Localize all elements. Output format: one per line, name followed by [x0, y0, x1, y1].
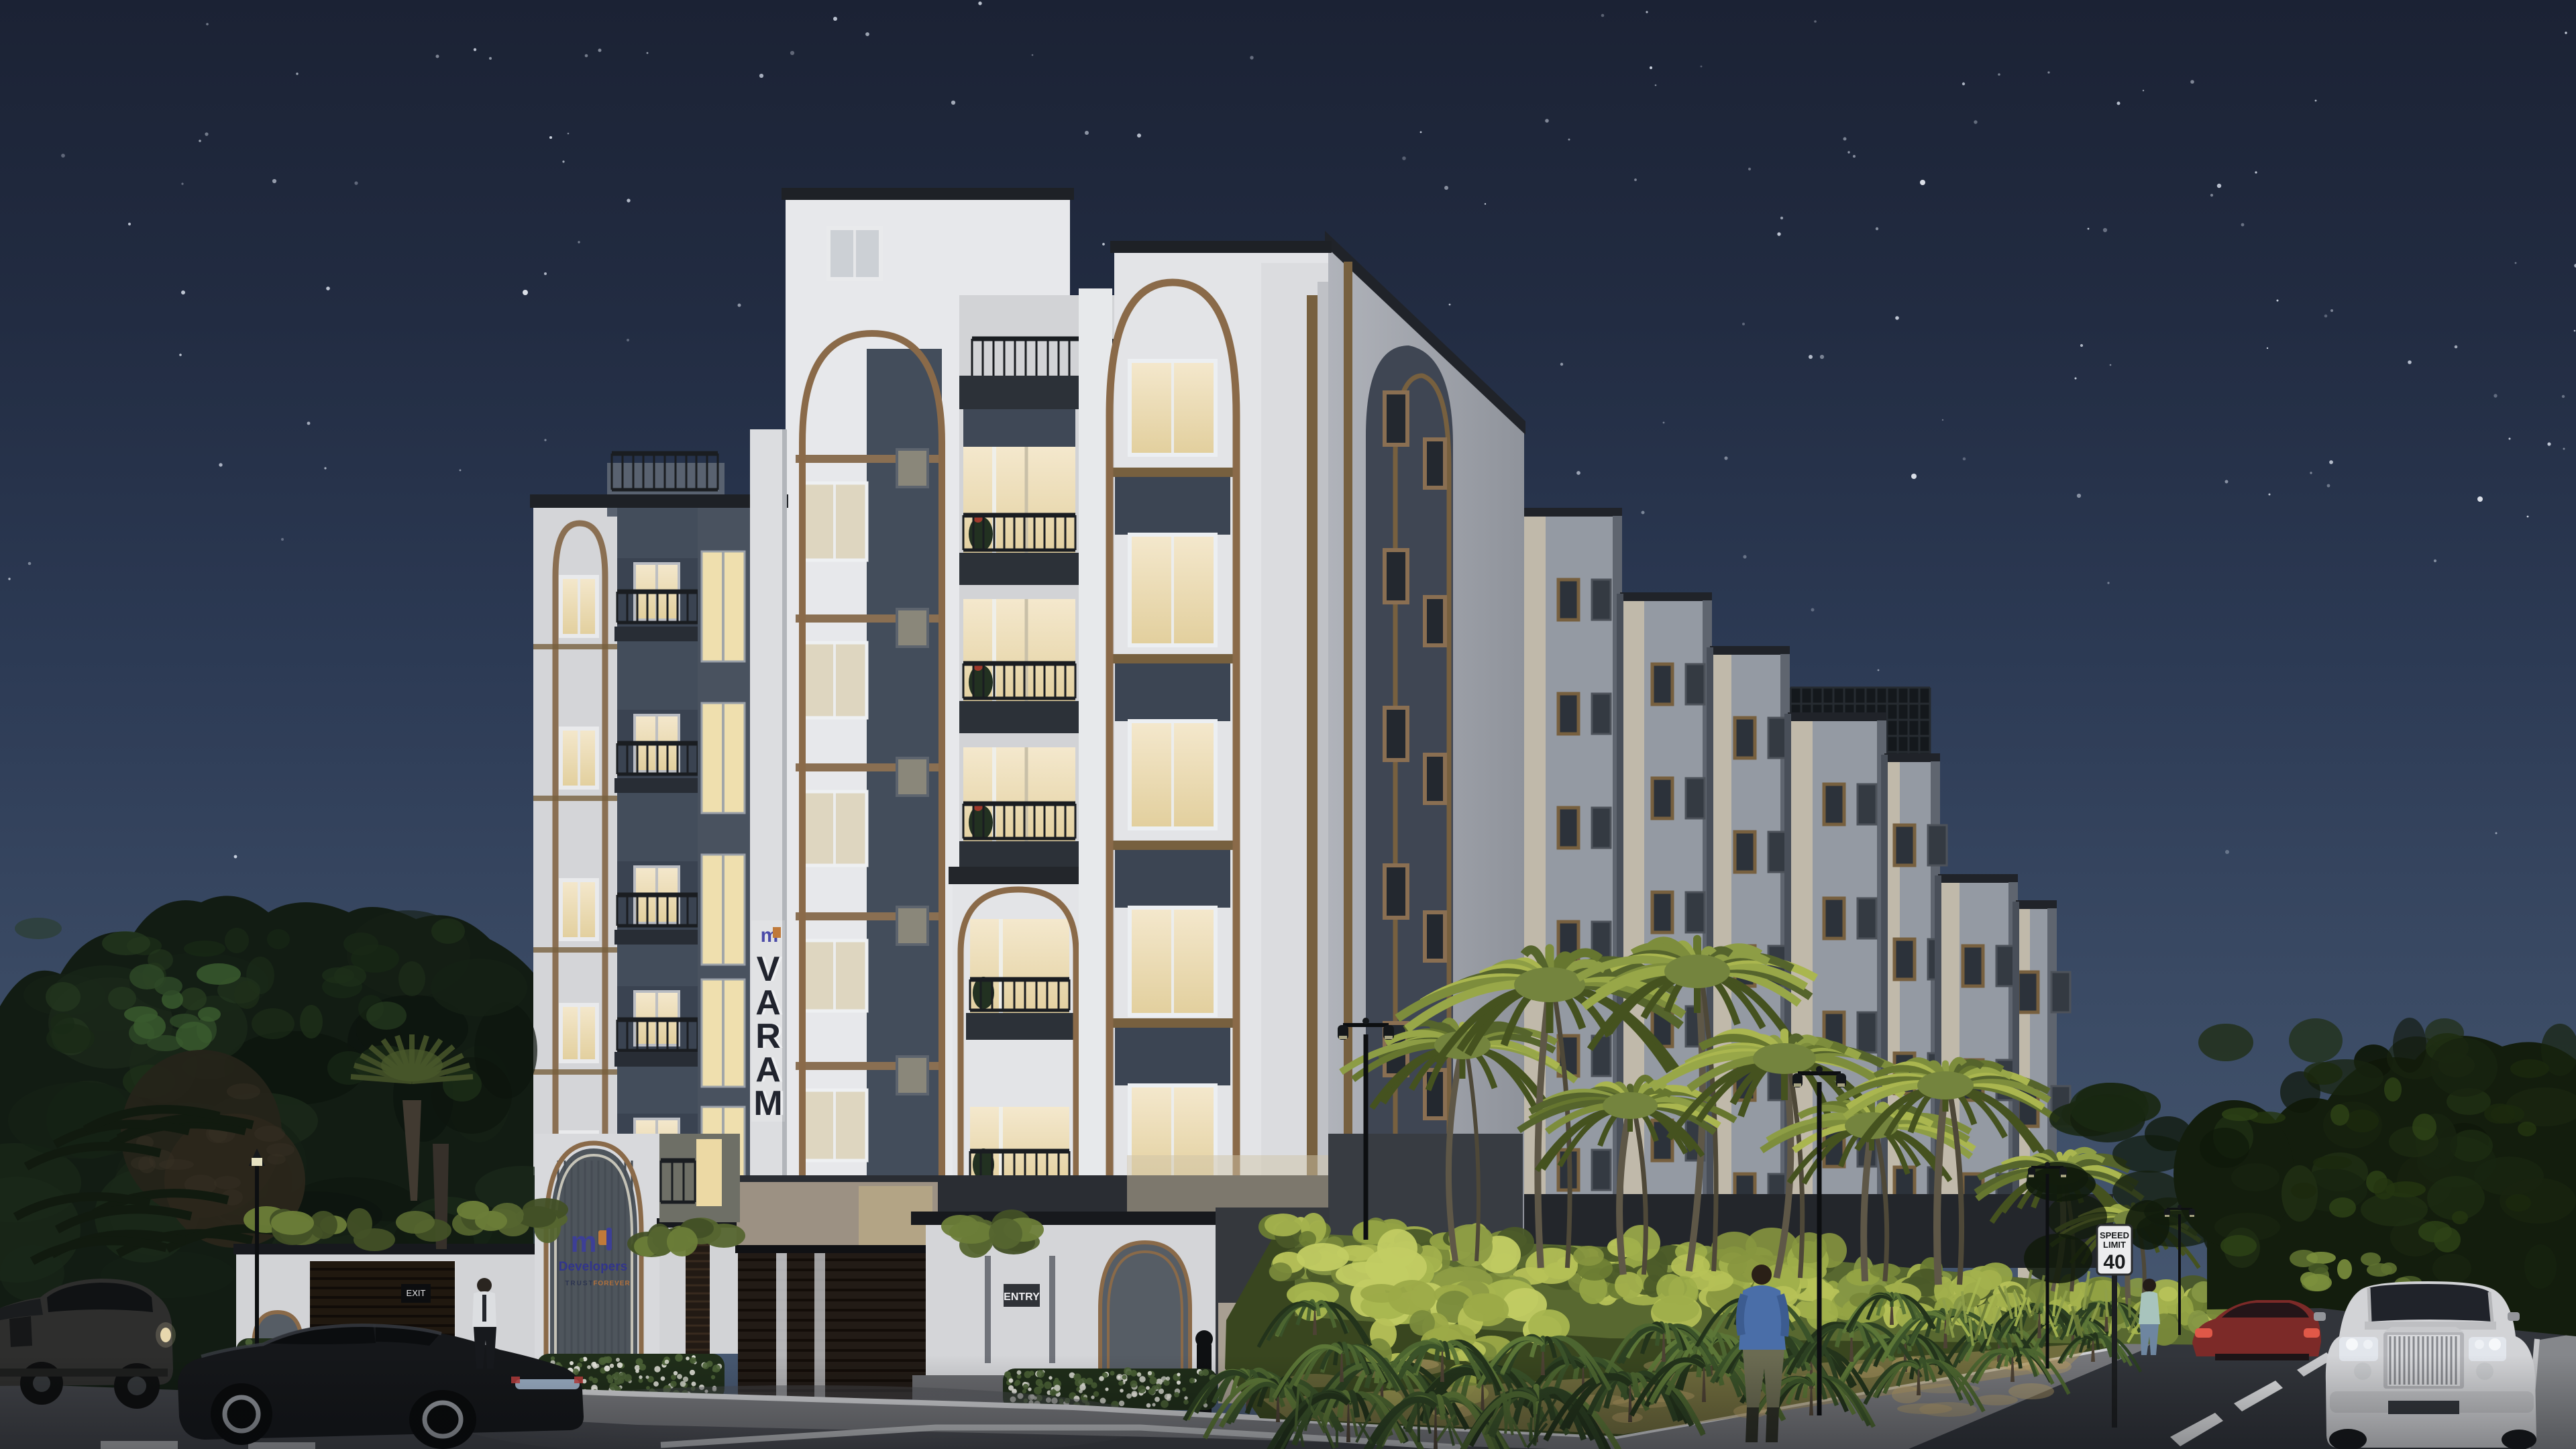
svg-text:Developers: Developers — [559, 1260, 627, 1274]
svg-text:40: 40 — [2103, 1251, 2125, 1273]
svg-text:SPEED: SPEED — [2100, 1230, 2129, 1240]
svg-text:ENTRY: ENTRY — [1004, 1291, 1040, 1303]
svg-text:LIMIT: LIMIT — [2103, 1240, 2126, 1250]
svg-text:TRUST: TRUST — [565, 1280, 594, 1287]
svg-text:EXIT: EXIT — [407, 1288, 426, 1298]
svg-text:M: M — [753, 1084, 782, 1123]
svg-text:m: m — [570, 1226, 596, 1258]
svg-text:FOREVER: FOREVER — [593, 1280, 630, 1287]
